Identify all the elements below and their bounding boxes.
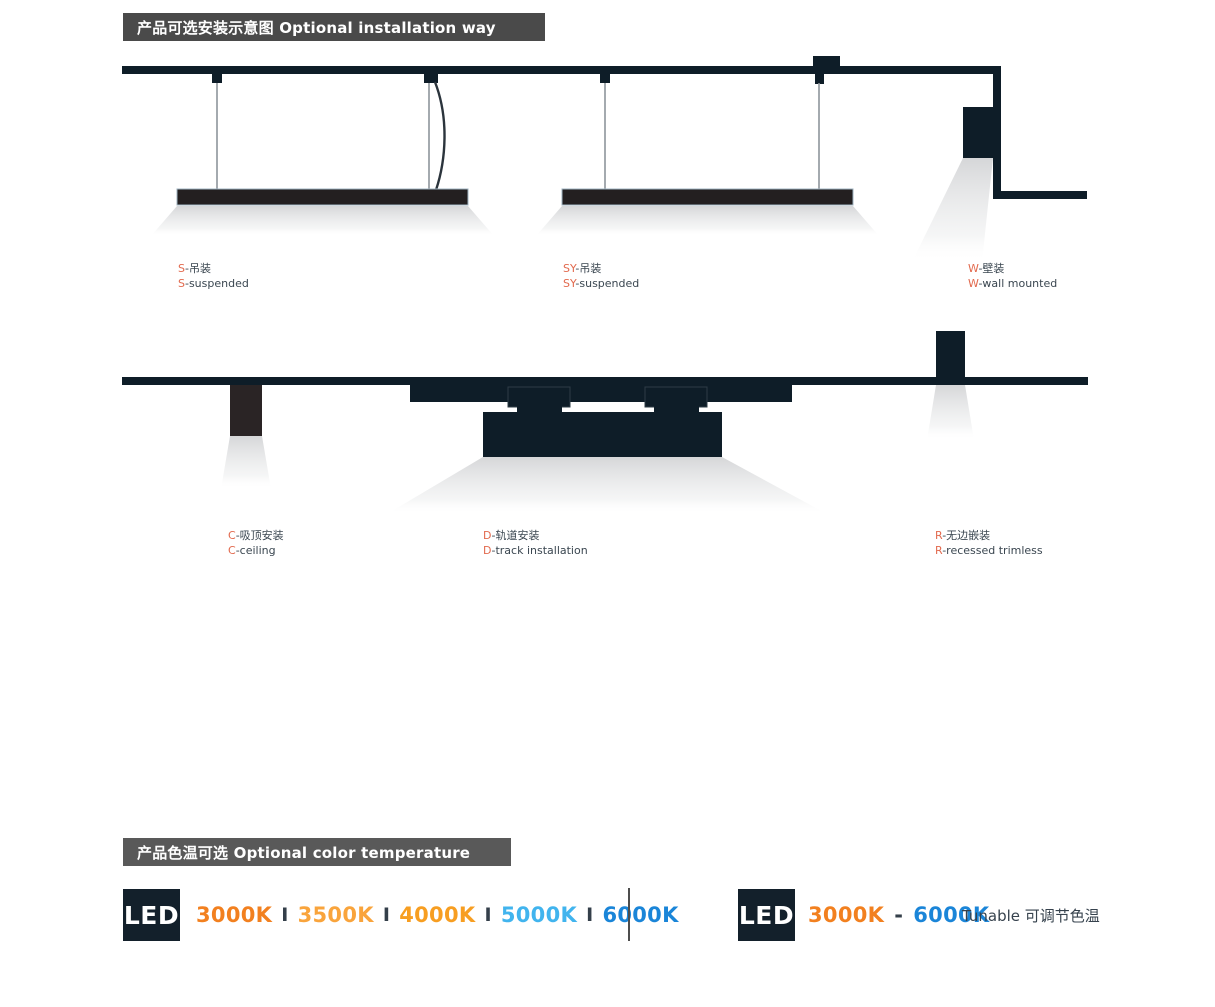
ceiling-line-bottom [122, 377, 1088, 385]
temp-option: 5000K [501, 903, 577, 927]
light-beam [387, 457, 827, 514]
wall-ledge [993, 191, 1087, 199]
label-sy-suspended: SY-吊装 SY-suspended [563, 261, 639, 291]
hanger-mount [600, 73, 610, 83]
tunable-dash: - [894, 903, 903, 927]
ceiling-line-top [122, 66, 1001, 74]
temp-separator: I [383, 904, 390, 926]
lamp-r-recessed [936, 331, 965, 378]
track-adapter-foot [517, 402, 562, 413]
label-r-recessed: R-无边嵌装 R-recessed trimless [935, 528, 1043, 558]
temp-separator: I [586, 904, 593, 926]
label-s-suspended: S-吊装 S-suspended [178, 261, 249, 291]
page: 产品可选安装示意图 Optional installation way [0, 0, 1215, 1007]
hanger-mount [212, 73, 222, 83]
fixed-temp-row: 3000KI3500KI4000KI5000KI6000K [196, 889, 679, 941]
section-divider [628, 888, 630, 941]
temp-option: 3000K [196, 903, 272, 927]
temp-separator: I [484, 904, 491, 926]
light-beam [927, 385, 974, 440]
temp-option: 4000K [399, 903, 475, 927]
ceiling-junction-box [813, 56, 840, 67]
label-w-wall-mounted: W-壁装 W-wall mounted [968, 261, 1057, 291]
lamp-sy-suspended [562, 189, 853, 205]
lamp-w-wall [963, 107, 993, 158]
power-cable [435, 82, 445, 190]
label-d-track: D-轨道安装 D-track installation [483, 528, 588, 558]
light-beam [221, 436, 271, 489]
wall-vertical [993, 66, 1001, 199]
temp-option: 6000K [602, 903, 678, 927]
temp-separator: I [281, 904, 288, 926]
lamp-s-suspended [177, 189, 468, 205]
led-badge: LED [123, 889, 180, 941]
temp-option: 3500K [298, 903, 374, 927]
lamp-c-ceiling [230, 385, 262, 436]
hanger-mount [815, 73, 824, 84]
hanger-mount [424, 73, 438, 83]
tunable-from: 3000K [808, 903, 884, 927]
section-header-color-temperature: 产品色温可选 Optional color temperature [123, 838, 511, 866]
track-adapter-foot [654, 402, 699, 413]
label-c-ceiling: C-吸顶安装 C-ceiling [228, 528, 284, 558]
tunable-note: Tunable 可调节色温 [962, 889, 1100, 941]
installation-diagram [0, 0, 1215, 600]
light-beam [151, 206, 494, 236]
light-beam [536, 206, 879, 236]
light-beam [912, 158, 993, 262]
led-badge: LED [738, 889, 795, 941]
lamp-d-track [483, 412, 722, 457]
track-rail [410, 385, 792, 402]
